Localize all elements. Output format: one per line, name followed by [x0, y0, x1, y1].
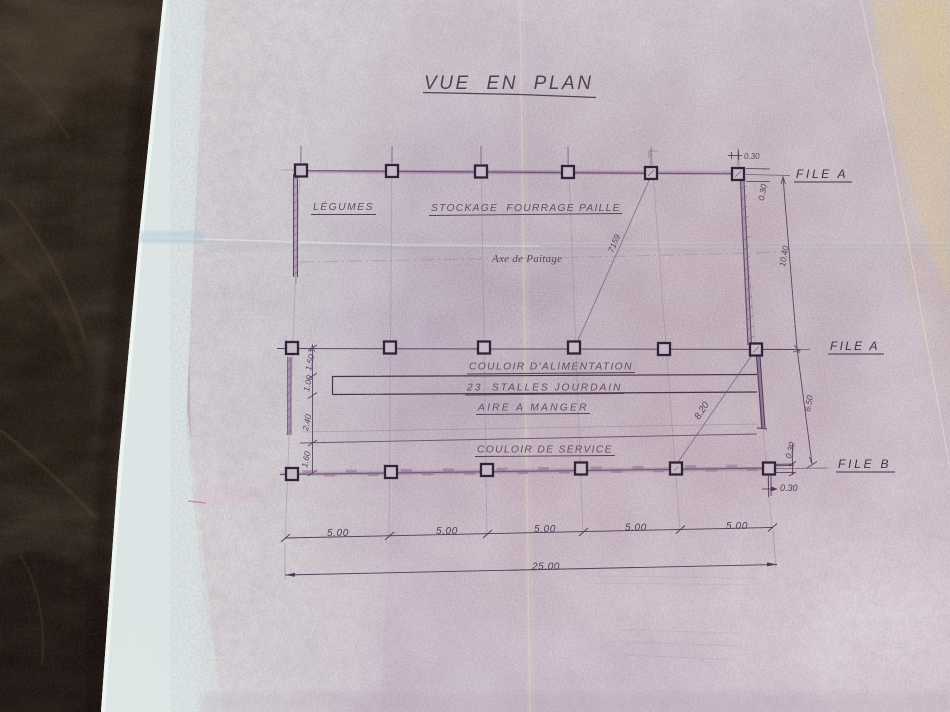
svg-text:VUE EN PLAN: VUE EN PLAN [424, 73, 594, 94]
svg-text:Axe de Paitage: Axe de Paitage [491, 253, 562, 265]
svg-text:LÉGUMES: LÉGUMES [313, 200, 374, 213]
svg-text:COULOIR DE SERVICE: COULOIR DE SERVICE [477, 445, 613, 456]
svg-text:COULOIR D'ALIMENTATION: COULOIR D'ALIMENTATION [469, 362, 633, 373]
svg-text:5.00: 5.00 [436, 526, 458, 537]
svg-text:5.00: 5.00 [327, 528, 349, 539]
svg-text:FILE A: FILE A [830, 339, 880, 353]
svg-text:0.30: 0.30 [780, 483, 798, 493]
svg-text:AIRE A MANGER: AIRE A MANGER [477, 403, 588, 414]
svg-text:STOCKAGE FOURRAGE PAILLE: STOCKAGE FOURRAGE PAILLE [431, 203, 621, 214]
svg-text:5.00: 5.00 [625, 523, 647, 534]
svg-text:0.30: 0.30 [744, 152, 760, 161]
svg-text:FILE A: FILE A [796, 167, 848, 181]
svg-text:23 STALLES JOURDAIN: 23 STALLES JOURDAIN [466, 383, 622, 394]
svg-text:FILE B: FILE B [838, 457, 891, 471]
svg-text:5.00: 5.00 [534, 524, 556, 535]
svg-text:5.00: 5.00 [726, 521, 748, 532]
svg-text:25.00: 25.00 [531, 562, 560, 573]
